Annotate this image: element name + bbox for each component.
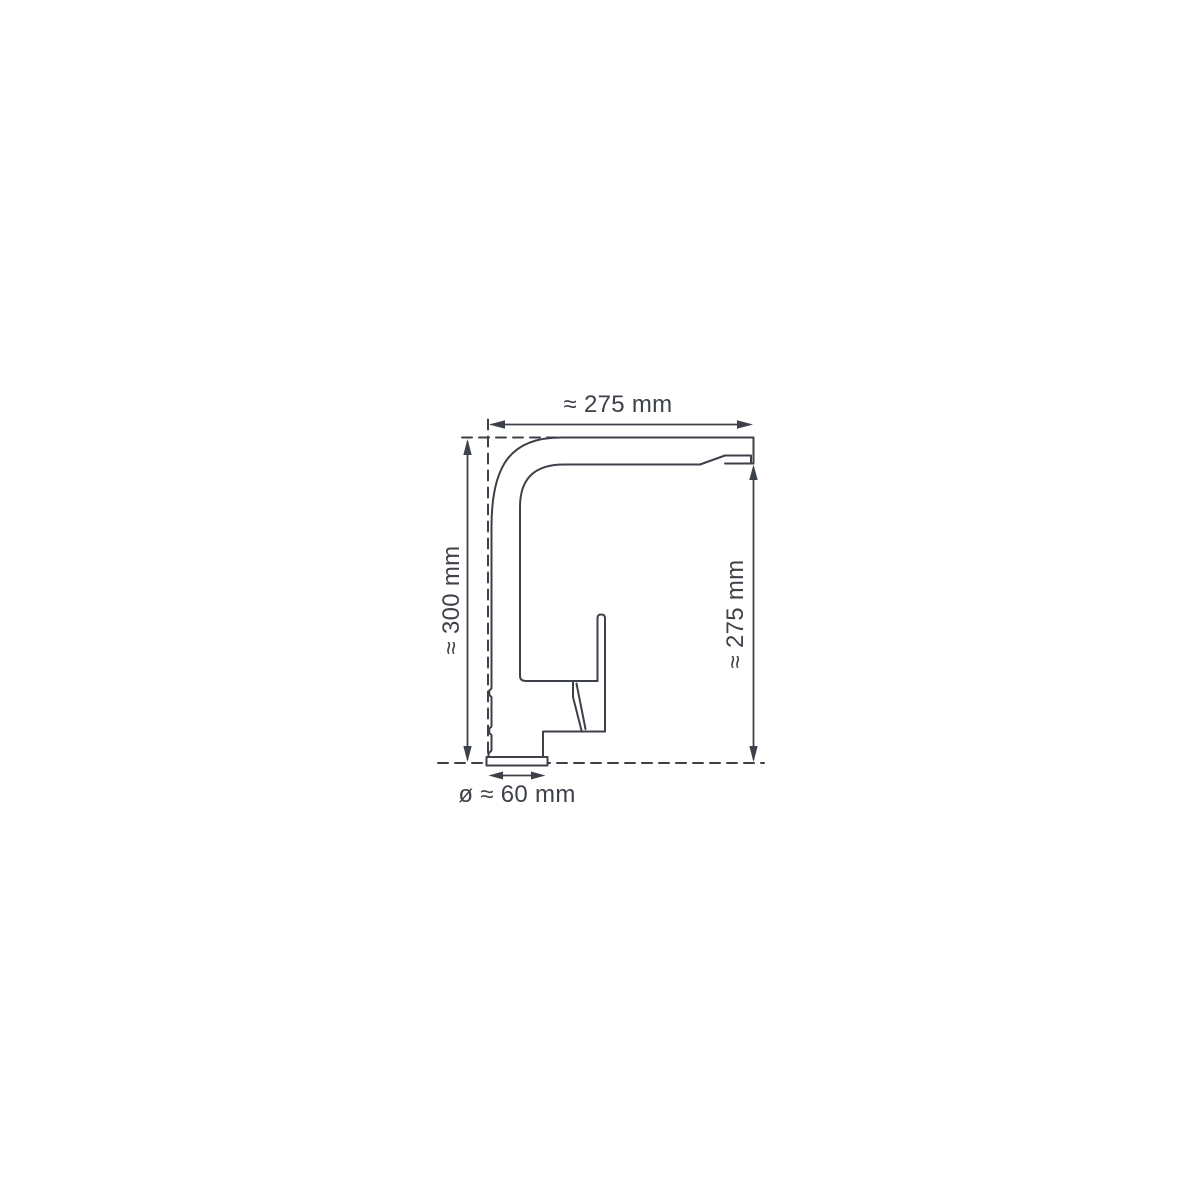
faucet-line-drawing <box>0 0 1200 1200</box>
dashed-reference-lines <box>438 420 764 764</box>
faucet-body-outer <box>489 438 754 757</box>
faucet-outline <box>487 438 754 766</box>
handle-lever <box>598 615 606 732</box>
arrowhead-left-icon <box>489 772 504 780</box>
dimension-line-bottom <box>489 772 546 780</box>
arrowhead-down-icon <box>463 746 471 762</box>
dimension-lines <box>463 420 757 779</box>
arrowhead-right-icon <box>737 420 753 428</box>
faucet-body-inner <box>520 465 700 682</box>
dimension-label-bottom: ø ≈ 60 mm <box>407 780 627 810</box>
arrowhead-up-icon <box>463 439 471 455</box>
base-flange <box>487 757 548 766</box>
dimension-label-left: ≈ 300 mm <box>437 490 467 710</box>
dimension-line-top <box>489 420 753 428</box>
faucet-base-block <box>543 732 605 757</box>
faucet-dimension-diagram: ≈ 275 mm ≈ 300 mm ≈ 275 mm ø ≈ 60 mm <box>0 0 1200 1200</box>
arrowhead-right-icon <box>531 772 546 780</box>
arrowhead-up-icon <box>749 465 757 481</box>
arrowhead-left-icon <box>489 420 505 428</box>
dimension-label-right: ≈ 275 mm <box>721 504 751 724</box>
arrowhead-down-icon <box>749 746 757 762</box>
handle-housing-detail <box>577 684 586 730</box>
dimension-label-top: ≈ 275 mm <box>508 390 728 420</box>
